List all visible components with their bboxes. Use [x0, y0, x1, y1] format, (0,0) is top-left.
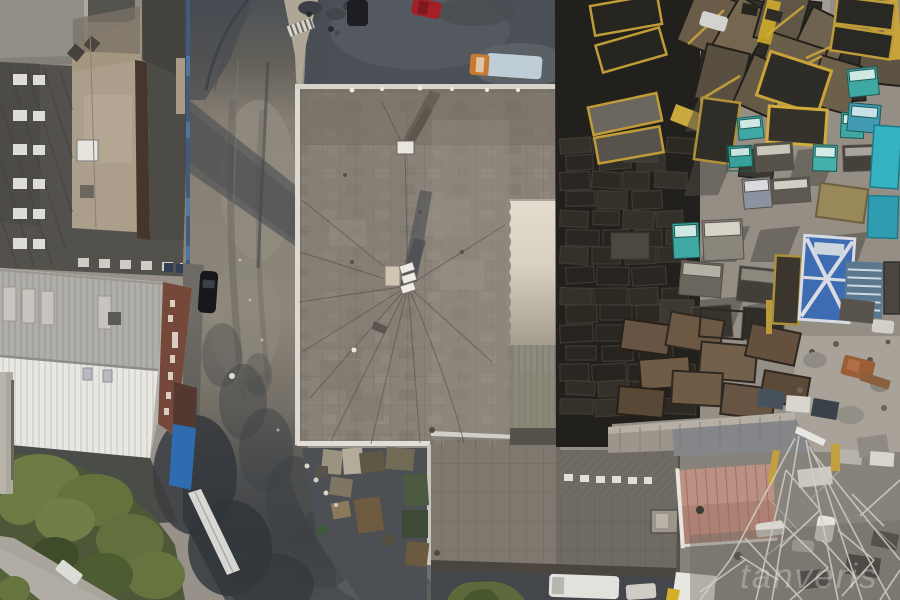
svg-text:tanveris: tanveris	[740, 557, 879, 596]
